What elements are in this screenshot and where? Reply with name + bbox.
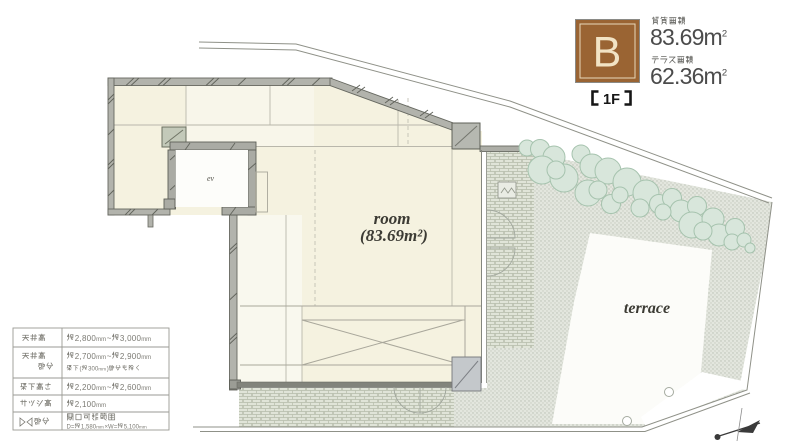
svg-text:2,700: 2,700 bbox=[75, 352, 97, 361]
svg-text:mm: mm bbox=[98, 367, 106, 372]
svg-text:2,200: 2,200 bbox=[75, 383, 97, 392]
svg-text:2,800: 2,800 bbox=[75, 334, 97, 343]
svg-text:mm: mm bbox=[96, 425, 104, 430]
svg-text:(83.69m²): (83.69m²) bbox=[360, 226, 428, 245]
svg-text:1,580: 1,580 bbox=[81, 425, 97, 431]
svg-text:300: 300 bbox=[88, 367, 99, 373]
svg-text:62.36m2: 62.36m2 bbox=[650, 63, 727, 89]
svg-text:mm: mm bbox=[141, 386, 151, 392]
svg-text:mm: mm bbox=[96, 355, 106, 361]
svg-text:1F: 1F bbox=[603, 92, 620, 108]
svg-text:~: ~ bbox=[107, 383, 112, 392]
svg-text:mm: mm bbox=[141, 337, 151, 343]
svg-text:B: B bbox=[593, 29, 622, 77]
svg-text:mm: mm bbox=[96, 386, 106, 392]
svg-text:3,000: 3,000 bbox=[120, 334, 142, 343]
svg-text:2,900: 2,900 bbox=[120, 352, 142, 361]
svg-text:2,600: 2,600 bbox=[120, 383, 142, 392]
svg-text:83.69m2: 83.69m2 bbox=[650, 24, 727, 50]
svg-text:(: ( bbox=[80, 367, 82, 373]
svg-text:2,100: 2,100 bbox=[75, 400, 97, 409]
svg-text:5,100: 5,100 bbox=[124, 425, 140, 431]
svg-text:mm: mm bbox=[139, 425, 147, 430]
svg-text:~: ~ bbox=[107, 334, 112, 343]
svg-text:mm: mm bbox=[96, 337, 106, 343]
svg-text:): ) bbox=[107, 367, 109, 373]
svg-text:ev: ev bbox=[207, 174, 215, 183]
svg-text:mm: mm bbox=[141, 355, 151, 361]
svg-text:mm: mm bbox=[96, 403, 106, 409]
svg-text:D=: D= bbox=[67, 425, 75, 431]
svg-text:×W=: ×W= bbox=[105, 425, 118, 431]
svg-text:terrace: terrace bbox=[624, 300, 670, 317]
svg-text:~: ~ bbox=[107, 352, 112, 361]
